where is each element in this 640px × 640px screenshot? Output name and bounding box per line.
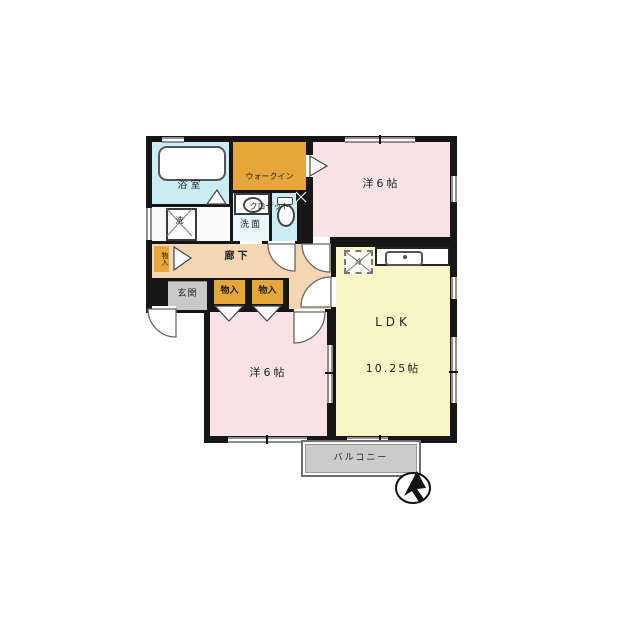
kitchen-sink-icon [385,251,423,266]
door-gap-wic-bedroom [306,155,313,177]
refrigerator-icon: 冷 [344,250,373,274]
floor-plan: 冷 バルコニー [0,0,640,640]
wic-label-line1: ウォークイン [233,172,306,182]
balcony-inner: バルコニー [305,444,417,473]
storage-a-label: 物入 [214,286,245,297]
window-tick [379,135,381,144]
window-bath-top [162,137,184,143]
door-gap-entry [152,306,176,313]
washer-label: 洗 [166,216,193,226]
entrance-label: 玄関 [168,289,207,300]
bedroom-lower-label: 洋6帖 [210,366,327,380]
corridor-extension [289,278,331,309]
bathroom-label: 浴室 [152,180,229,193]
ldk-label-line2: 10.25帖 [336,362,450,376]
refrigerator-label: 冷 [354,257,363,267]
sliding-door-bedroom-ldk [327,345,333,403]
door-gap-bedroom-lower [294,309,325,312]
door-gap-washroom [240,241,262,244]
faucet-icon [403,255,407,259]
window-ldk-right-small [451,277,457,299]
window-bedroom-upper-right [451,176,457,202]
window-utility-left [146,208,152,240]
kitchen-counter-icon [375,247,450,266]
ldk-label: LDK 10.25帖 [336,285,450,406]
storage-b-label: 物入 [252,286,283,297]
exterior-cutout [146,313,204,443]
washroom-label: 洗面 [229,220,273,231]
balcony: バルコニー [301,440,421,477]
balcony-label: バルコニー [334,453,389,464]
bedroom-upper-label: 洋6帖 [313,177,450,191]
door-gap-bedroom-upper [313,237,330,244]
door-gap-toilet [268,241,295,244]
window-tick [266,435,268,444]
window-tick [449,371,458,373]
wic-label-line2: クロゼット [233,202,306,212]
ldk-label-line1: LDK [336,315,450,330]
corridor-label: 廊下 [200,251,275,264]
storage-side-label: 物入 [155,247,168,271]
bathtub-icon [158,146,226,181]
window-ldk-right-large [451,337,457,403]
